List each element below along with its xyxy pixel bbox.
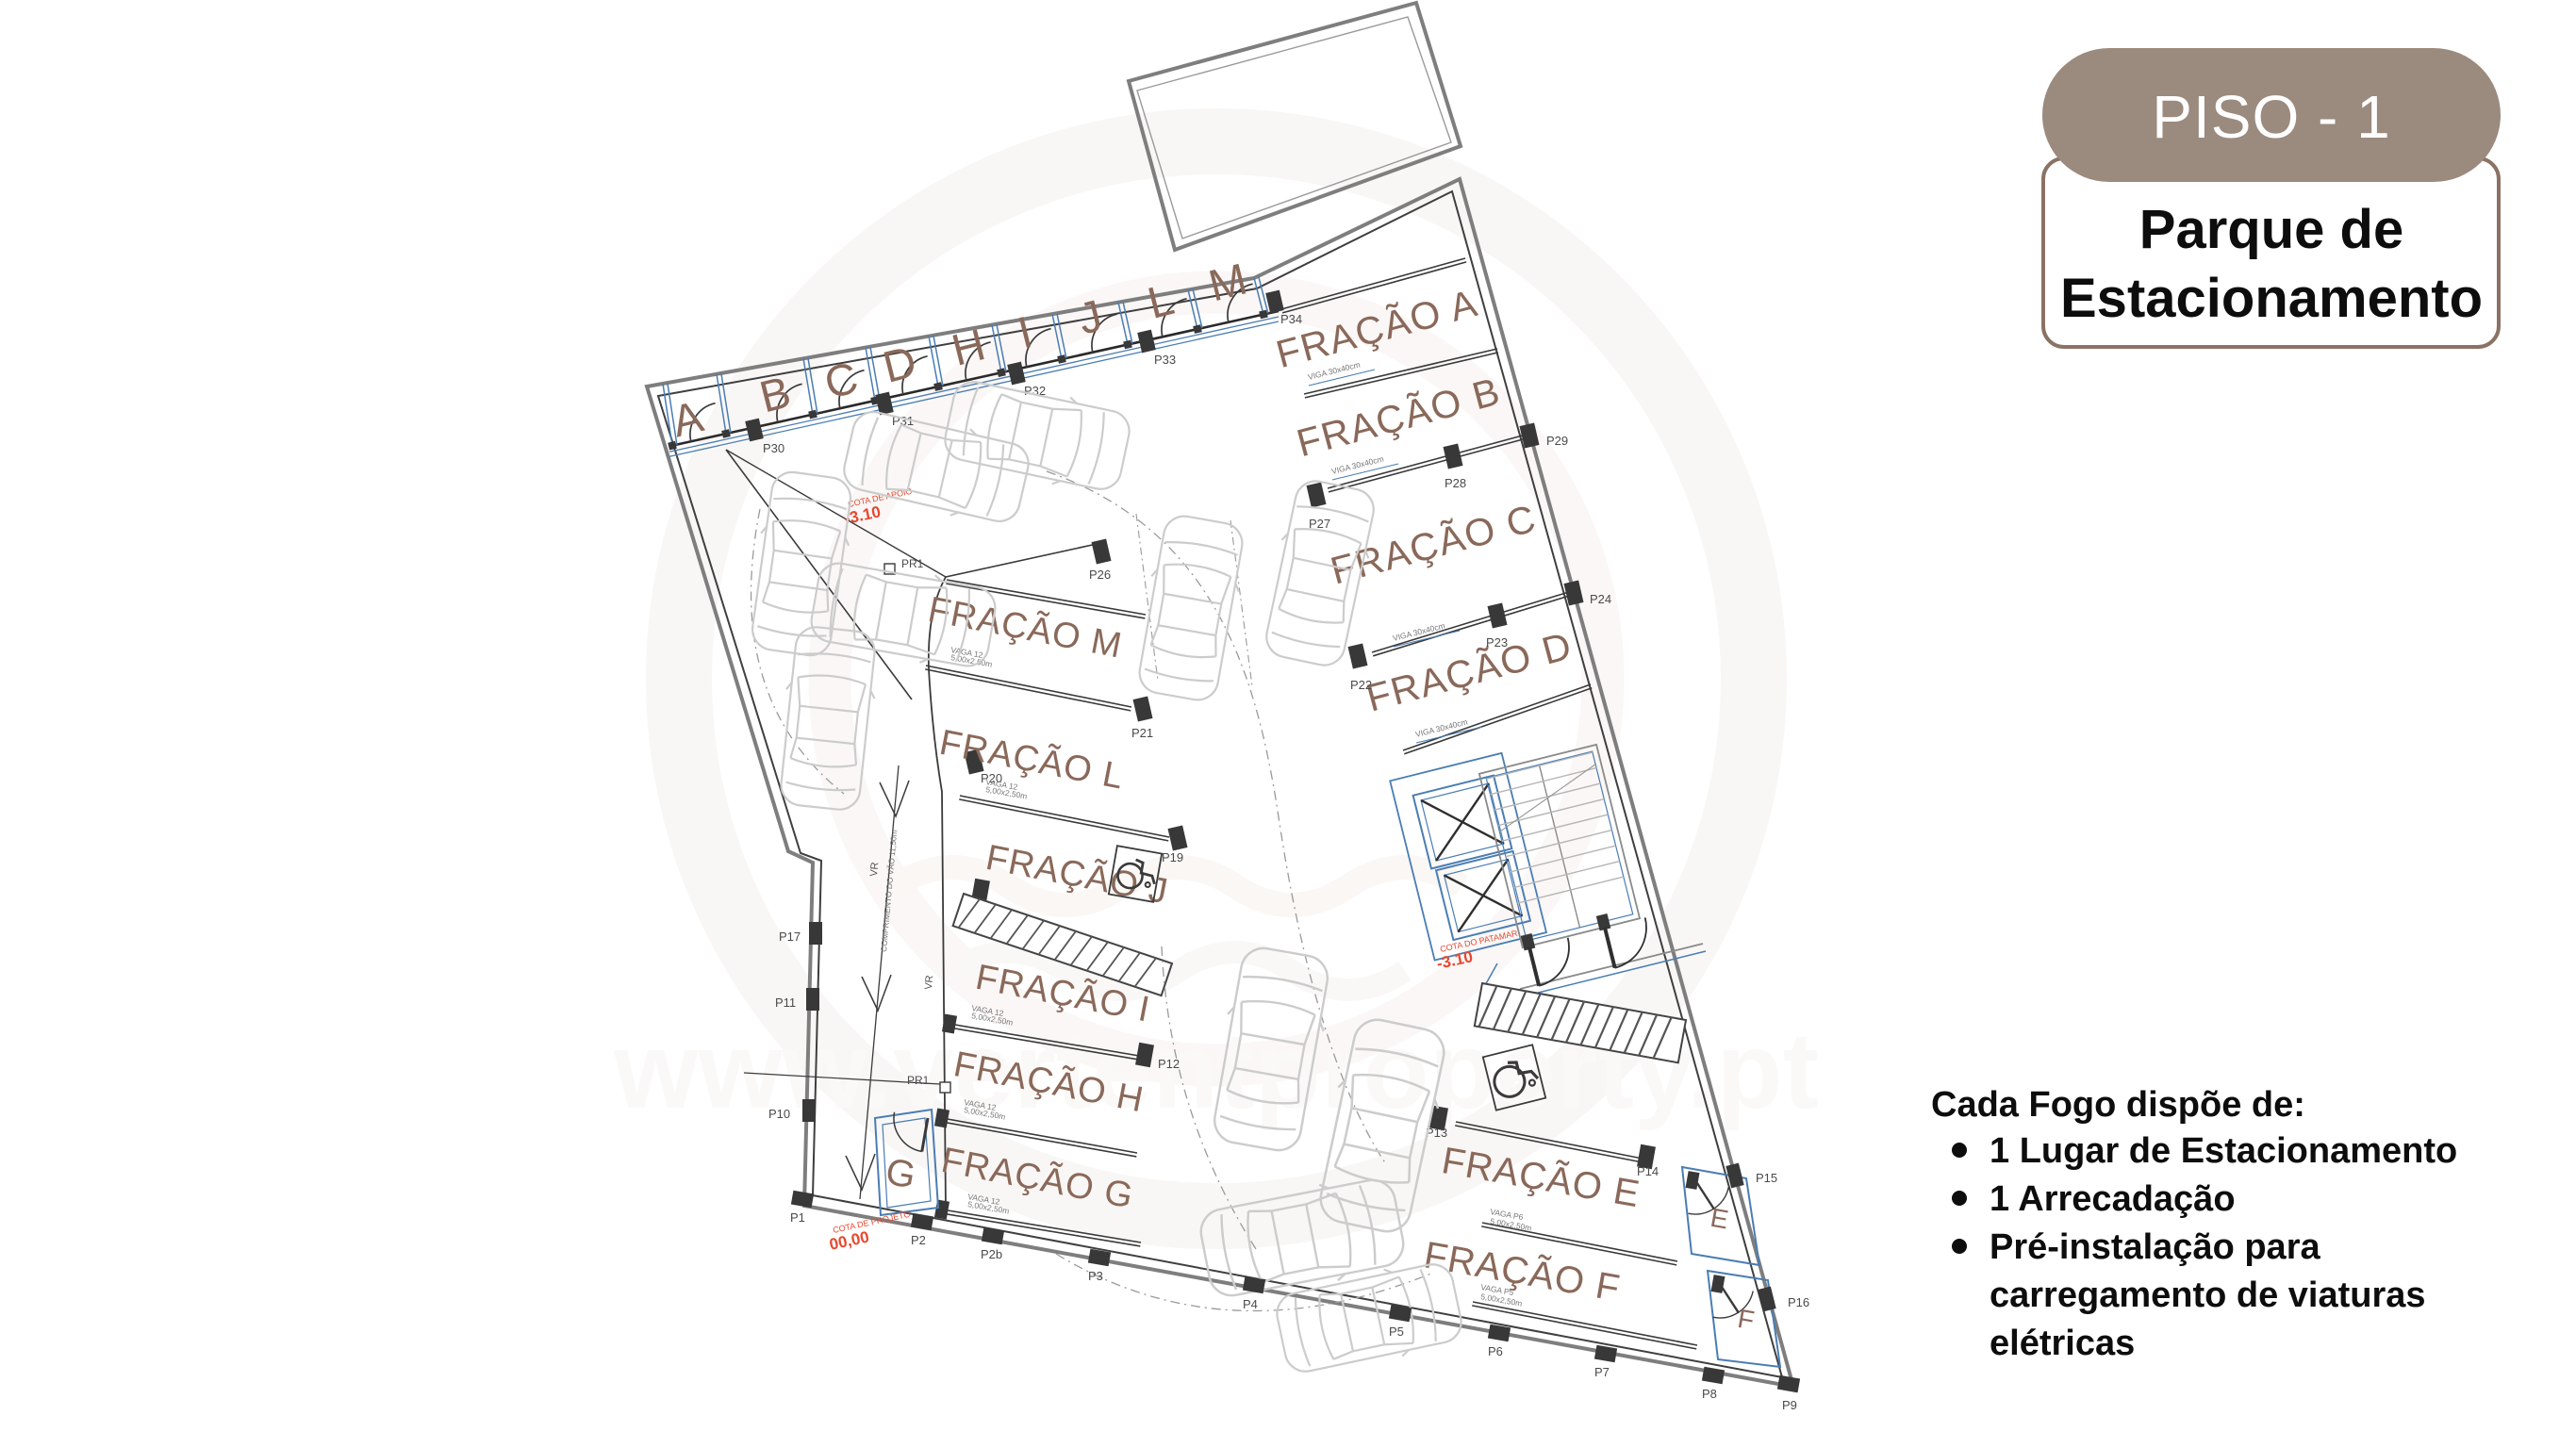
- svg-text:PISO - 1: PISO - 1: [2152, 83, 2390, 151]
- svg-text:P5: P5: [1389, 1325, 1404, 1339]
- svg-text:P9: P9: [1782, 1398, 1797, 1412]
- svg-text:P16: P16: [1788, 1295, 1809, 1309]
- svg-text:Cada Fogo dispõe de:: Cada Fogo dispõe de:: [1931, 1085, 2305, 1125]
- svg-text:F: F: [1736, 1304, 1757, 1336]
- svg-text:PR1: PR1: [907, 1074, 930, 1087]
- svg-text:P15: P15: [1756, 1171, 1777, 1185]
- svg-text:P30: P30: [763, 441, 784, 455]
- svg-text:P7: P7: [1594, 1365, 1610, 1379]
- svg-text:P29: P29: [1546, 434, 1568, 448]
- svg-text:P11: P11: [775, 995, 796, 1010]
- svg-text:P23: P23: [1486, 635, 1508, 650]
- svg-text:1 Arrecadação: 1 Arrecadação: [1990, 1179, 2236, 1219]
- svg-text:Pré-instalação para: Pré-instalação para: [1990, 1227, 2320, 1267]
- svg-text:P3: P3: [1088, 1269, 1103, 1283]
- svg-text:PR1: PR1: [901, 557, 924, 570]
- svg-text:VIGA 30x40cm: VIGA 30x40cm: [1392, 621, 1445, 643]
- svg-text:P2: P2: [911, 1233, 926, 1247]
- svg-text:P22: P22: [1350, 678, 1372, 692]
- svg-text:A: A: [667, 390, 708, 446]
- svg-text:P17: P17: [779, 930, 801, 944]
- svg-text:P12: P12: [1158, 1057, 1180, 1071]
- svg-text:P34: P34: [1280, 312, 1302, 326]
- svg-text:elétricas: elétricas: [1990, 1324, 2135, 1363]
- svg-text:P19: P19: [1162, 850, 1183, 864]
- svg-text:P21: P21: [1131, 726, 1153, 740]
- svg-text:VIGA 30x40cm: VIGA 30x40cm: [1414, 717, 1468, 739]
- svg-text:P6: P6: [1488, 1344, 1503, 1358]
- svg-text:FRAÇÃO L: FRAÇÃO L: [936, 722, 1128, 798]
- svg-text:VR: VR: [923, 975, 935, 990]
- svg-text:FRAÇÃO E: FRAÇÃO E: [1439, 1139, 1643, 1215]
- svg-text:FRAÇÃO C: FRAÇÃO C: [1326, 496, 1541, 592]
- svg-text:FRAÇÃO B: FRAÇÃO B: [1292, 370, 1505, 466]
- svg-text:P10: P10: [768, 1107, 790, 1121]
- svg-text:carregamento de viaturas: carregamento de viaturas: [1990, 1275, 2426, 1315]
- svg-text:P24: P24: [1590, 592, 1611, 606]
- svg-text:1 Lugar de Estacionamento: 1 Lugar de Estacionamento: [1990, 1131, 2457, 1171]
- svg-text:VIGA 30x40cm: VIGA 30x40cm: [1330, 454, 1384, 476]
- svg-text:VR: VR: [868, 862, 881, 877]
- svg-text:P26: P26: [1089, 568, 1111, 582]
- svg-text:E: E: [1709, 1203, 1731, 1235]
- svg-text:Estacionamento: Estacionamento: [2060, 268, 2483, 329]
- svg-text:P8: P8: [1702, 1387, 1717, 1401]
- svg-text:P33: P33: [1154, 353, 1176, 367]
- svg-text:P2b: P2b: [981, 1247, 1002, 1261]
- svg-text:Parque de: Parque de: [2139, 199, 2403, 260]
- svg-text:P28: P28: [1445, 476, 1466, 490]
- svg-text:P1: P1: [790, 1210, 805, 1225]
- svg-text:G: G: [883, 1151, 918, 1197]
- svg-text:D: D: [878, 336, 921, 392]
- svg-text:P4: P4: [1243, 1297, 1258, 1311]
